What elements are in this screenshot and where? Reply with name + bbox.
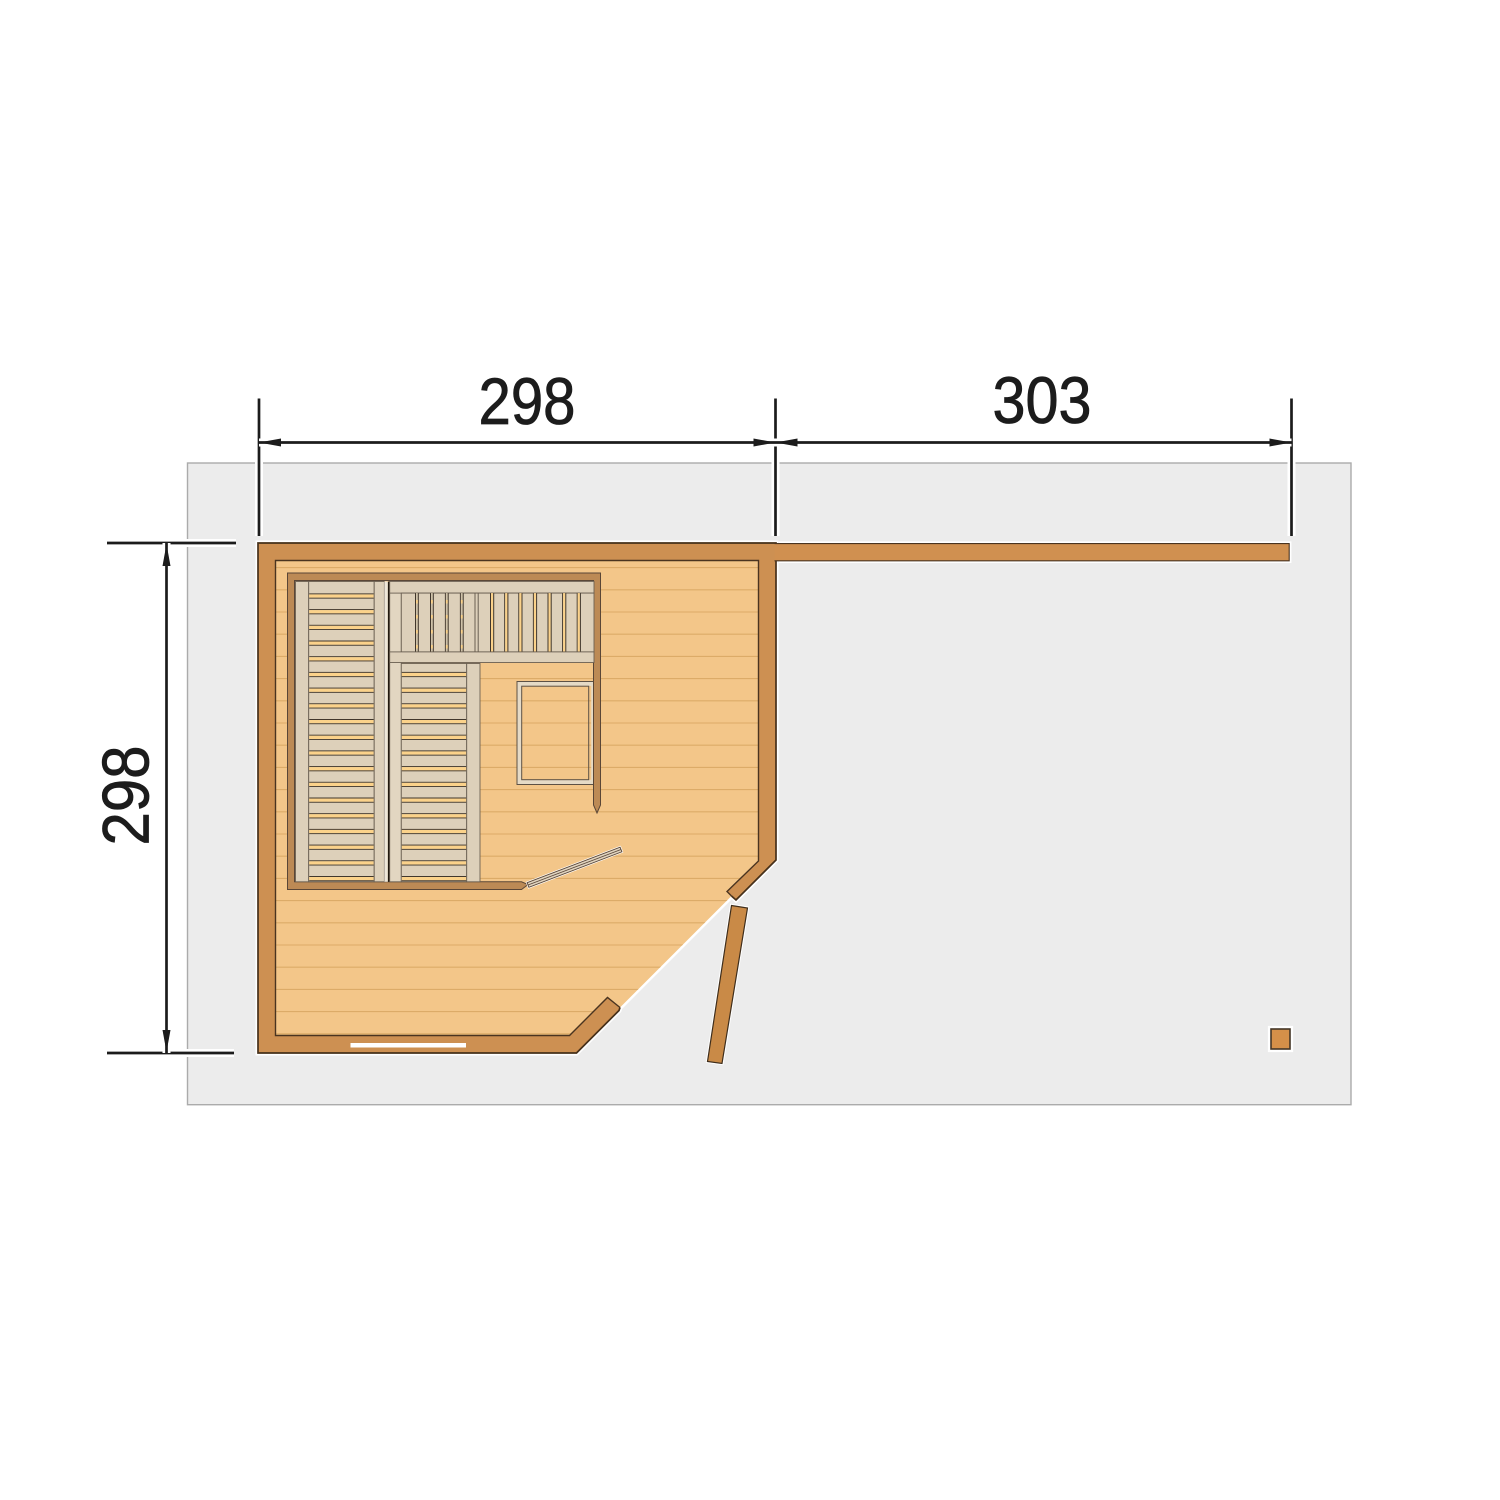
svg-text:298: 298 [89,746,163,846]
svg-text:298: 298 [479,364,576,438]
svg-text:303: 303 [993,363,1092,437]
